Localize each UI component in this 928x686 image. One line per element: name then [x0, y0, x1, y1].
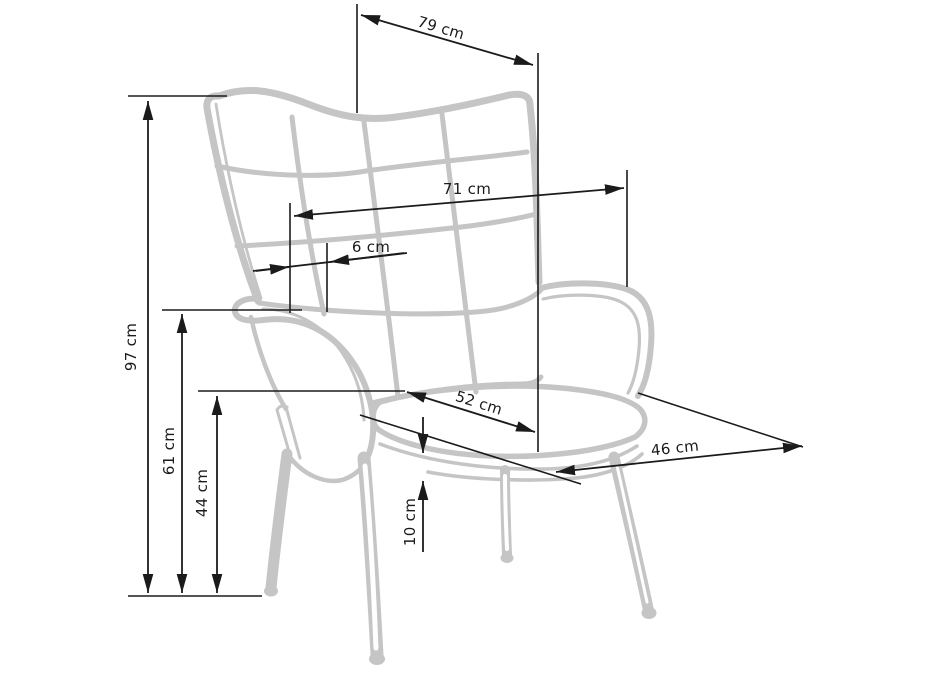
dimension-label-61cm: 61 cm — [160, 427, 178, 475]
ext-line-46-right — [638, 393, 803, 447]
dim-arrow-6-left — [256, 267, 289, 271]
dimension-label-44cm: 44 cm — [193, 469, 211, 517]
dimension-diagram: 79 cm 71 cm 6 cm 97 cm 61 cm 44 cm 52 cm… — [0, 0, 928, 686]
dimension-label-10cm: 10 cm — [401, 498, 419, 546]
chair-outline-group — [207, 90, 657, 665]
dimension-label-6cm: 6 cm — [352, 238, 390, 256]
dimension-label-97cm: 97 cm — [122, 323, 140, 371]
dimension-label-71cm: 71 cm — [443, 180, 491, 198]
